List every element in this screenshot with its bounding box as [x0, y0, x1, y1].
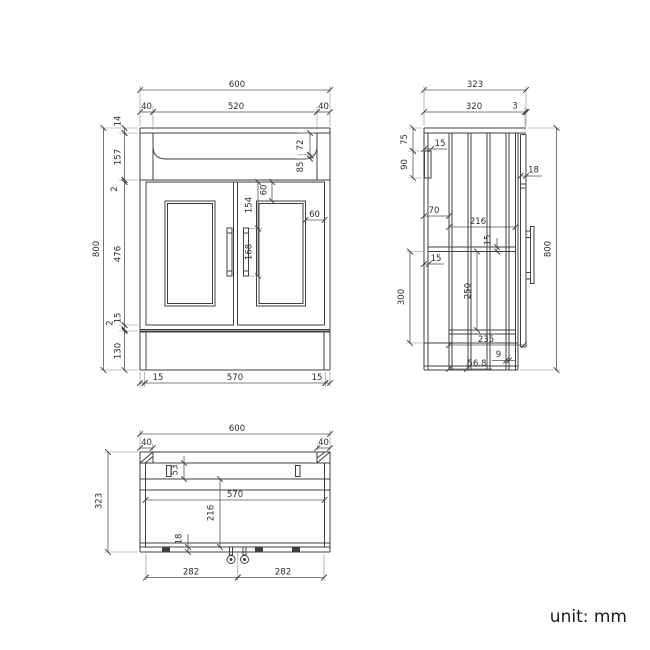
front-doors — [146, 182, 325, 325]
side-dim-service-gap: 300 — [397, 289, 407, 305]
plan-outline — [140, 452, 330, 552]
front-dim-handle-length: 168 — [245, 244, 255, 260]
front-dim-rim-right: 40 — [318, 102, 329, 112]
front-dim-rim-left: 40 — [141, 102, 152, 112]
front-dim-basin-width: 520 — [228, 102, 244, 112]
plan-dim-back-rail-depth: 53 — [171, 465, 181, 476]
technical-drawing: 600 40 520 40 14 157 2 476 15 2 130 800 — [0, 0, 650, 650]
front-dim-basin-section-height: 157 — [114, 149, 124, 165]
front-dim-basin-depth: 72 — [296, 140, 306, 151]
side-dim-back-panel-thickness: 15 — [431, 254, 442, 264]
front-basin — [153, 133, 317, 159]
front-dim-bottom-panel-gap: 2 — [106, 320, 116, 325]
front-dim-door-height: 476 — [114, 246, 124, 262]
front-dimensions: 600 40 520 40 14 157 2 476 15 2 130 800 — [92, 80, 330, 387]
side-dim-door-thickness: 18 — [528, 166, 539, 176]
front-dim-basin-outer-depth: 85 — [296, 162, 306, 173]
side-dim-internal-depth: 216 — [470, 217, 486, 227]
side-dim-rail-thickness: 15 — [484, 235, 494, 246]
side-door-handle — [526, 227, 534, 284]
front-dim-gap-above-doors: 2 — [110, 186, 120, 191]
side-dim-shelf-depth: 250 — [464, 283, 474, 299]
front-dim-overall-width: 600 — [229, 80, 245, 90]
plan-dim-fixing-right-spacing: 282 — [275, 568, 291, 578]
front-dim-overall-height: 800 — [92, 241, 102, 257]
side-door-profile — [521, 135, 527, 348]
front-dim-side-panel-right: 15 — [312, 373, 323, 383]
plan-dim-overall-depth: 323 — [95, 493, 105, 509]
unit-note: unit: mm — [550, 607, 627, 627]
front-dim-internal-width: 570 — [227, 373, 243, 383]
front-view: 600 40 520 40 14 157 2 476 15 2 130 800 — [92, 80, 330, 387]
side-dim-pipe-hole-width: 9 — [496, 350, 501, 360]
side-dim-carcass-depth: 320 — [466, 102, 482, 112]
plan-dim-internal-depth: 216 — [207, 505, 217, 521]
side-dimensions: 323 320 3 75 90 15 70 216 15 15 — [397, 80, 560, 371]
side-dim-bracket-top-offset: 75 — [400, 134, 410, 145]
front-dim-countertop-thickness: 14 — [114, 116, 124, 127]
front-dim-door-frame-side-inset: 60 — [309, 210, 320, 220]
side-cabinet-outline — [424, 128, 526, 370]
plan-dimensions: 600 40 40 53 570 216 18 282 282 323 — [95, 424, 331, 581]
side-dim-pipe-hole-offset: 56.8 — [468, 359, 487, 369]
side-dim-overall-height: 800 — [544, 241, 554, 257]
plan-dim-overall-width: 600 — [229, 424, 245, 434]
plan-dim-corner-right: 40 — [318, 438, 329, 448]
plan-corner-blocks — [140, 452, 330, 463]
plan-dim-corner-left: 40 — [141, 438, 152, 448]
side-dim-top-rail-depth: 70 — [429, 206, 440, 216]
plan-view: 600 40 40 53 570 216 18 282 282 323 — [95, 424, 331, 581]
front-dim-plinth-height: 130 — [114, 343, 124, 359]
plan-dim-internal-width: 570 — [227, 490, 243, 500]
drawing-canvas: 600 40 520 40 14 157 2 476 15 2 130 800 — [0, 0, 650, 650]
side-dim-bracket-height: 90 — [400, 159, 410, 170]
front-dim-handle-top-offset: 154 — [245, 197, 255, 213]
side-dim-overall-depth: 323 — [467, 80, 483, 90]
front-dim-side-panel-left: 15 — [153, 373, 164, 383]
side-view: 323 320 3 75 90 15 70 216 15 15 — [397, 80, 560, 371]
plan-dim-door-thickness: 18 — [175, 534, 185, 545]
front-dim-door-frame-top-inset: 60 — [260, 185, 270, 196]
side-dim-door-clearance: 3 — [512, 102, 517, 112]
plan-dim-fixing-left-spacing: 282 — [183, 568, 199, 578]
side-dim-base-internal-depth: 235 — [478, 335, 494, 345]
side-dim-bracket-depth: 15 — [435, 139, 446, 149]
